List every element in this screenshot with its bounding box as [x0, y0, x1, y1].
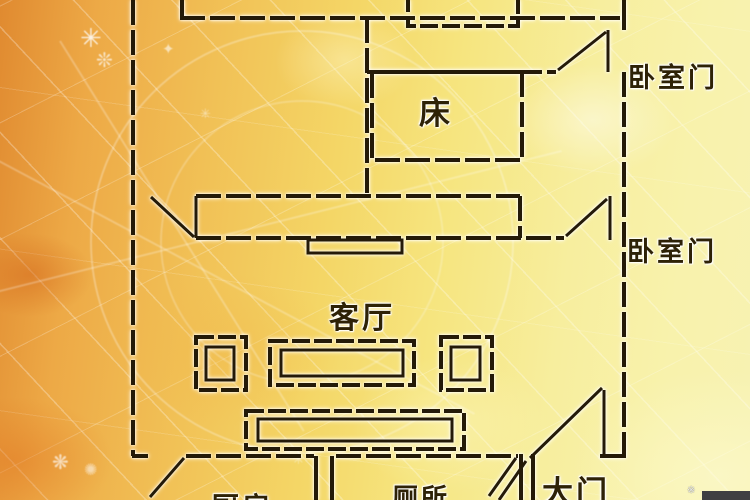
armchair-left-outer: [196, 337, 246, 390]
left-room-door-swing: [151, 197, 194, 237]
middle-wall-upper: [196, 196, 520, 238]
label-bed: 床: [419, 88, 453, 133]
bedroom-door-middle-swing: [566, 199, 607, 236]
sofa-table-inner: [281, 350, 403, 376]
armchair-right-outer: [441, 337, 492, 390]
walls: [132, 0, 626, 500]
floorplan-image: ✳ ❊ ✦ ✳ ❋ ✺ ✳: [0, 0, 750, 500]
watermark-mark: ※: [687, 485, 695, 496]
top-cabinet: [408, 0, 518, 26]
kitchen-partition-wall: [316, 456, 332, 500]
watermark-bar: [702, 491, 750, 500]
label-toilet: 厕所: [392, 478, 450, 500]
label-kitchen: 厨房: [211, 486, 273, 500]
armchair-left-inner: [206, 347, 234, 380]
label-bedroom-door-top: 卧室门: [628, 56, 718, 95]
label-main-door: 大门: [542, 467, 610, 500]
main-door-swing: [530, 388, 602, 458]
toilet-door-jamb: [521, 454, 533, 500]
tv-cabinet-outer: [246, 411, 464, 449]
bedroom-door-top-swing: [558, 32, 606, 70]
tv-cabinet-inner: [258, 419, 452, 441]
furniture: [196, 0, 522, 449]
sofa-table-outer: [270, 341, 414, 385]
label-bedroom-door-middle: 卧室门: [627, 230, 717, 269]
armchair-right-inner: [451, 347, 480, 380]
window-sill: [308, 240, 402, 253]
door-swings: [150, 30, 610, 500]
label-living-room: 客厅: [329, 293, 395, 337]
kitchen-door-swing: [150, 458, 184, 497]
